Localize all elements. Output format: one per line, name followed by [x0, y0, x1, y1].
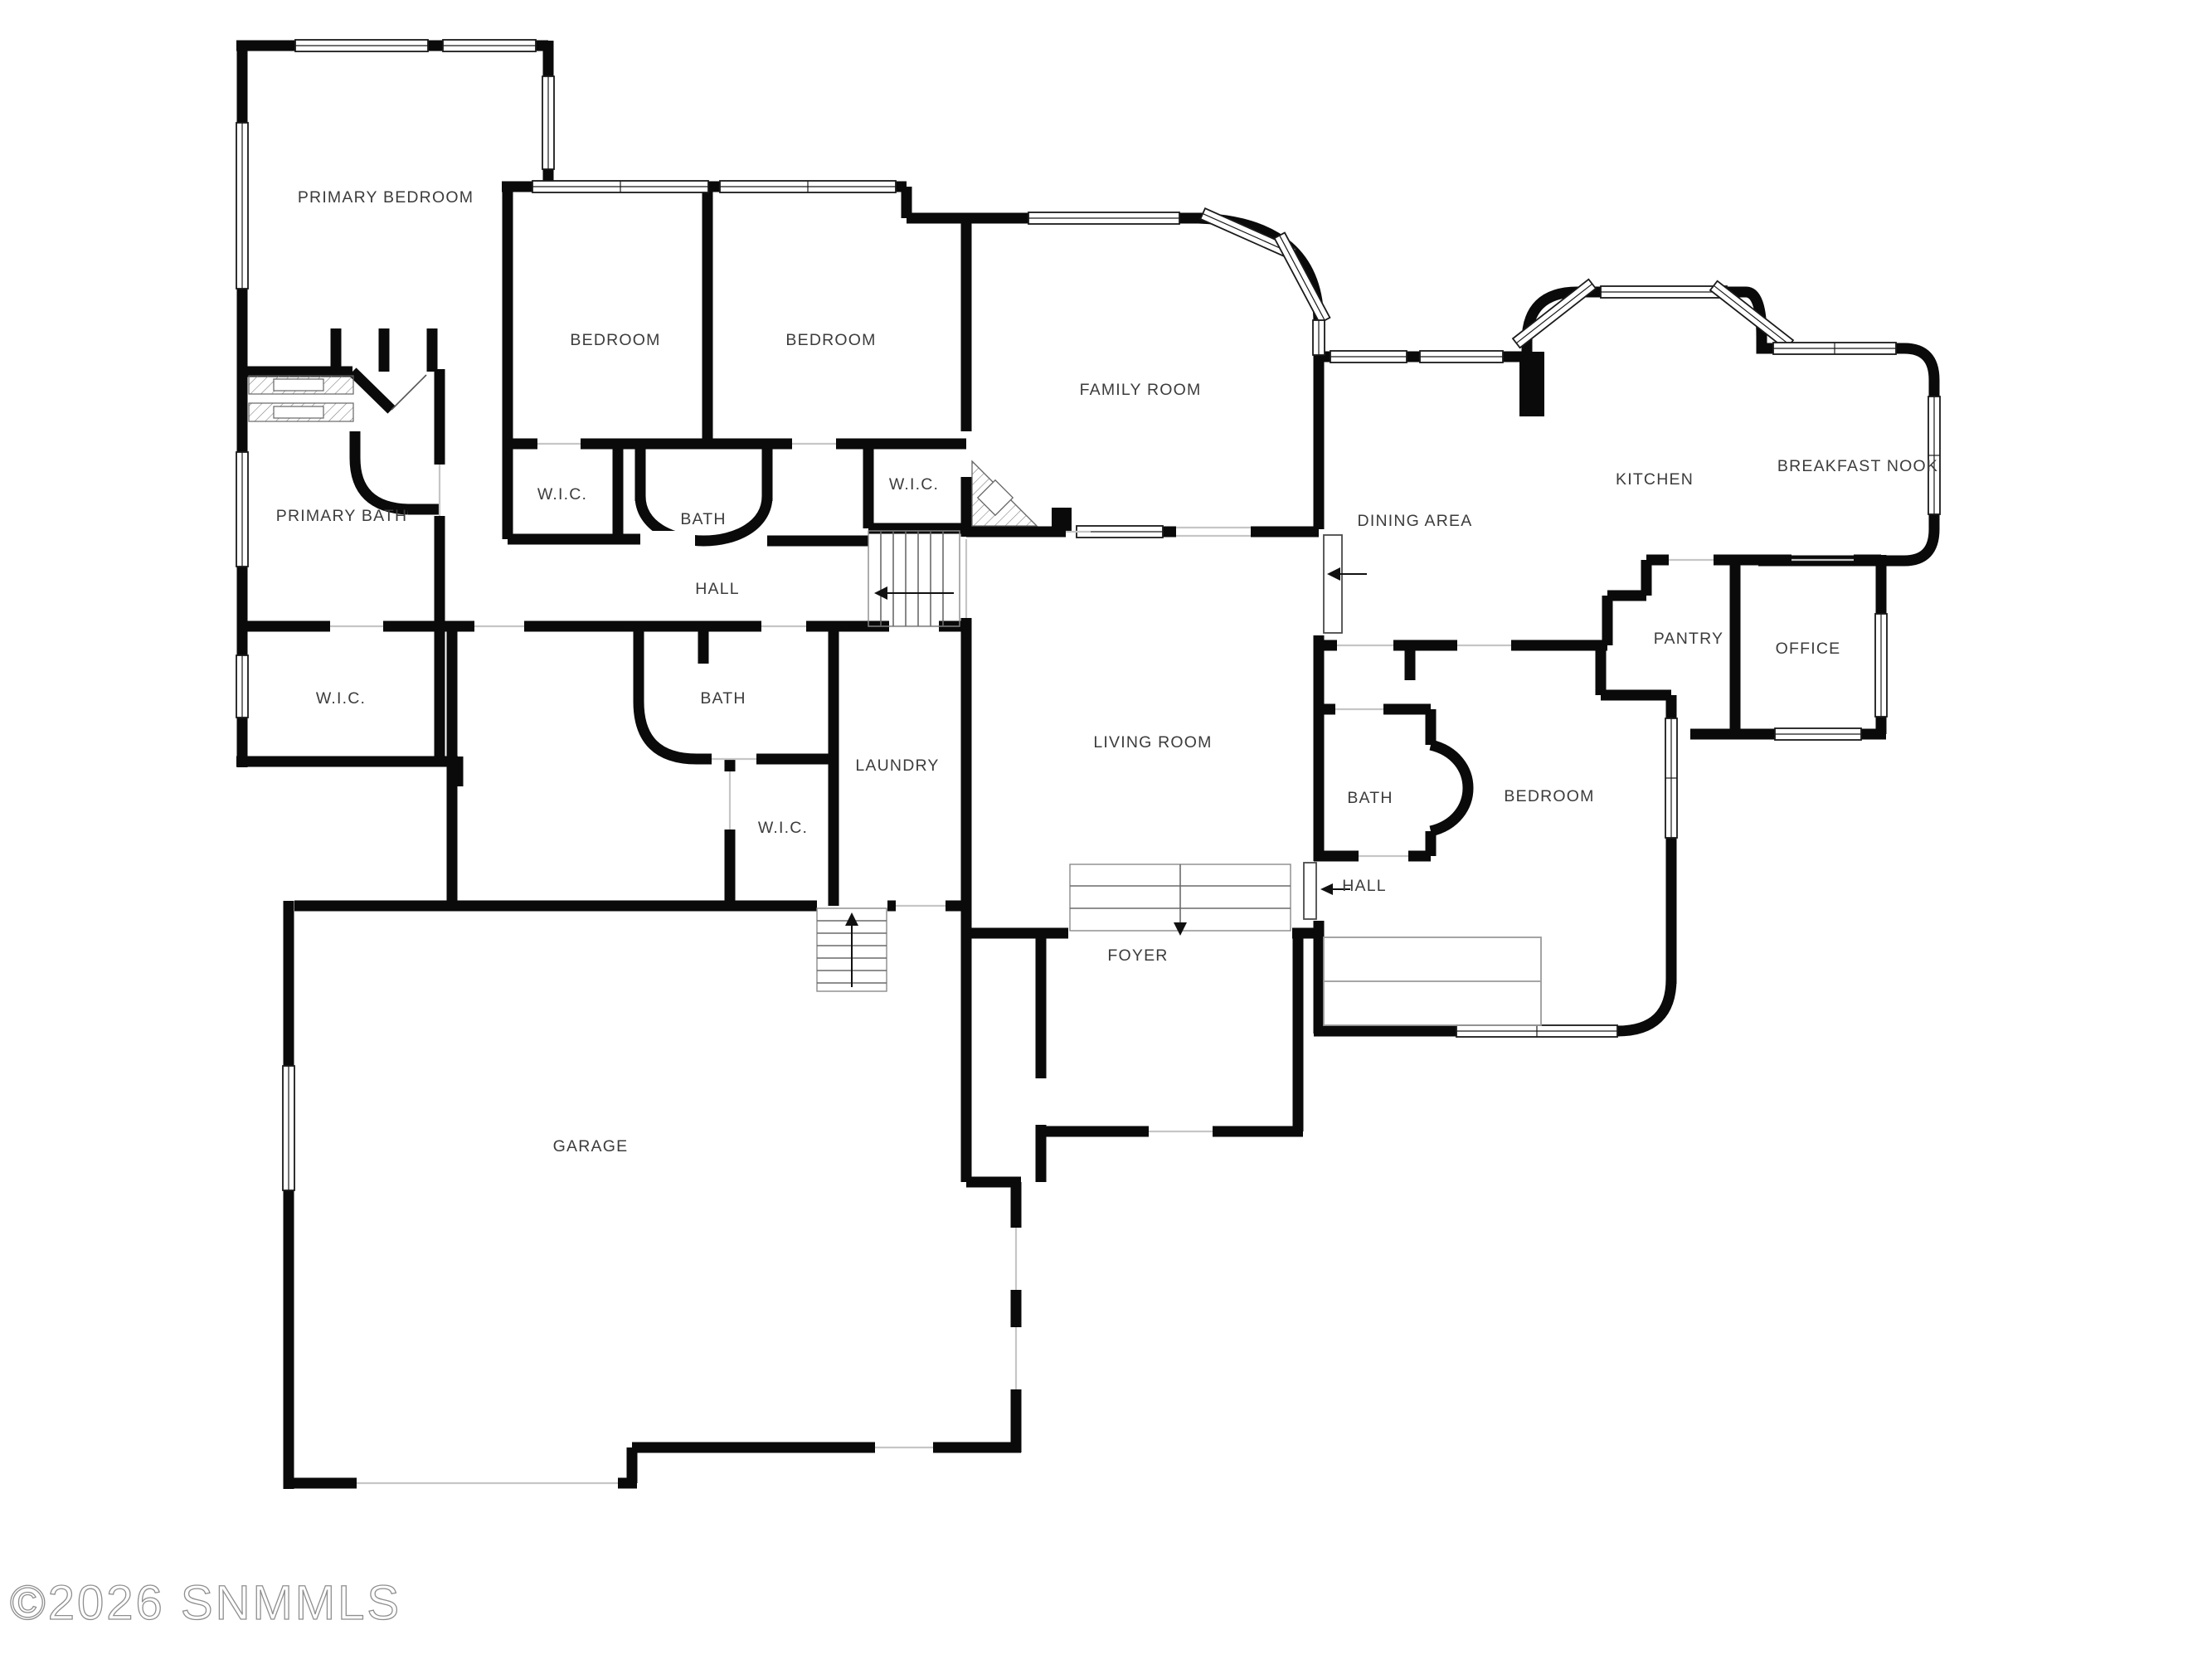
window-icon — [1928, 397, 1940, 514]
window-icon — [1330, 351, 1407, 362]
window-icon — [1513, 280, 1596, 348]
room-label-foyer: FOYER — [1107, 946, 1168, 965]
door-panel — [1304, 863, 1316, 919]
window-icon — [1875, 614, 1887, 717]
window-icon — [1420, 351, 1503, 362]
floor-plan-canvas: PRIMARY BEDROOM BEDROOM BEDROOM FAMILY R… — [0, 0, 2212, 1659]
room-label-garage: GARAGE — [553, 1137, 629, 1155]
window-icon — [236, 123, 248, 289]
room-label-bedroom-east: BEDROOM — [1504, 787, 1594, 805]
room-label-bedroom-west-1: BEDROOM — [570, 331, 660, 349]
room-label-bath-wing: BATH — [680, 510, 726, 528]
stairs-basement — [817, 908, 887, 991]
door-swing-arrow — [1320, 883, 1333, 895]
room-labels: PRIMARY BEDROOM BEDROOM BEDROOM FAMILY R… — [276, 188, 1938, 1155]
room-label-hall-east: HALL — [1342, 877, 1387, 895]
room-label-wic-bedroom-1: W.I.C. — [537, 485, 587, 504]
room-label-living-room: LIVING ROOM — [1093, 733, 1212, 752]
window-icon — [236, 655, 248, 718]
room-label-kitchen: KITCHEN — [1616, 470, 1694, 489]
entry-steps — [1070, 864, 1291, 936]
window-icon — [1313, 320, 1325, 355]
room-label-dining-area: DINING AREA — [1358, 512, 1473, 530]
window-icon — [720, 181, 896, 192]
door-panel — [1324, 535, 1342, 633]
room-label-family-room: FAMILY ROOM — [1080, 381, 1202, 399]
floor-plan-page: PRIMARY BEDROOM BEDROOM BEDROOM FAMILY R… — [0, 0, 2212, 1659]
walls — [236, 41, 1934, 1489]
window-icon — [532, 181, 708, 192]
watermark: ©2026 SNMMLS — [10, 1576, 401, 1630]
window-icon — [1601, 286, 1727, 298]
window-icon — [1028, 212, 1179, 224]
window-icon — [295, 40, 428, 51]
stair-direction-arrow — [845, 912, 858, 926]
window-icon — [236, 452, 248, 567]
window-icon — [1773, 343, 1896, 354]
room-label-laundry: LAUNDRY — [855, 757, 939, 775]
room-label-office: OFFICE — [1776, 640, 1841, 658]
window-icon — [1456, 1025, 1617, 1037]
window-icon — [443, 40, 536, 51]
room-label-wic-bedroom-2: W.I.C. — [889, 475, 939, 494]
room-label-bath-east: BATH — [1347, 789, 1393, 807]
window-icon — [283, 1066, 294, 1190]
room-label-bedroom-west-2: BEDROOM — [785, 331, 876, 349]
window-icon — [1275, 233, 1330, 324]
window-icon — [1775, 728, 1861, 740]
room-label-pantry: PANTRY — [1654, 630, 1724, 648]
front-porch — [1324, 937, 1541, 1025]
window-icon — [1665, 718, 1677, 838]
closet-rods — [249, 376, 353, 421]
window-icon — [542, 76, 554, 169]
room-label-wic-primary: W.I.C. — [316, 689, 366, 708]
window-symbols — [236, 40, 1940, 1190]
fireplace-hatch — [972, 461, 1037, 526]
room-label-primary-bath: PRIMARY BATH — [276, 507, 408, 525]
room-label-wic-bedroom-3: W.I.C. — [758, 819, 808, 837]
room-label-hall-west: HALL — [695, 580, 740, 598]
room-label-bath-west: BATH — [700, 689, 746, 708]
door-leaf — [391, 375, 426, 410]
step-direction-arrow — [1174, 922, 1187, 936]
room-label-breakfast-nook: BREAKFAST NOOK — [1777, 457, 1938, 475]
stairs-main — [868, 531, 960, 626]
room-label-primary-bedroom: PRIMARY BEDROOM — [298, 188, 474, 207]
door-opening — [649, 531, 695, 562]
